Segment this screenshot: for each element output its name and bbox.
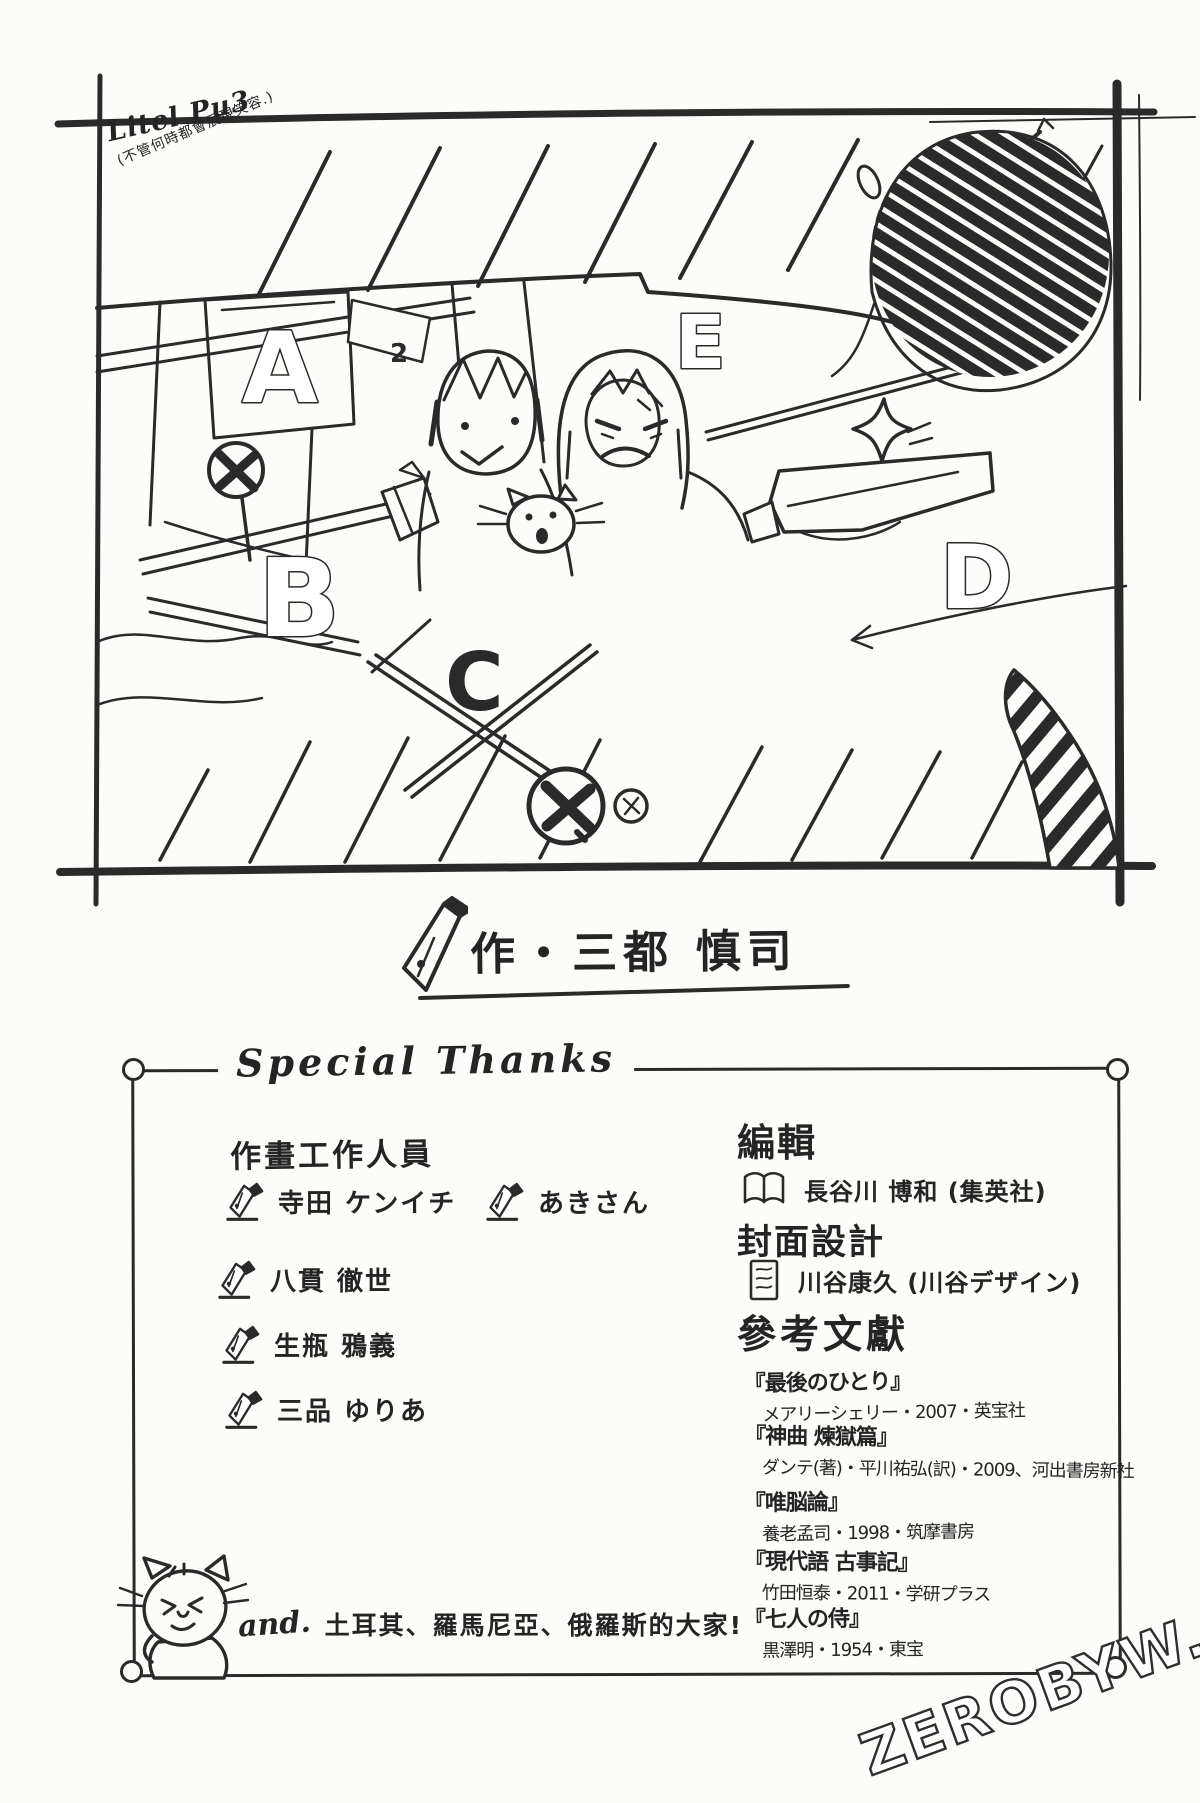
pen-nib-icon bbox=[222, 1323, 260, 1369]
box-corner-top-right bbox=[1106, 1058, 1129, 1081]
panel-label-b: B bbox=[258, 537, 340, 662]
star-sparkle bbox=[853, 399, 932, 461]
box-corner-top-left bbox=[122, 1058, 145, 1081]
panel-label-e: E bbox=[675, 300, 726, 386]
staff-section-header: 作畫工作人員 bbox=[230, 1129, 435, 1177]
reference-item: 『唯脳論』 養老孟司・1998・筑摩書房 bbox=[744, 1480, 1105, 1546]
scribbled-ball bbox=[832, 119, 1111, 391]
staff-name: あきさん bbox=[538, 1183, 650, 1226]
boy-character bbox=[419, 351, 572, 590]
reference-detail: ダンテ(著)・平川祐弘(訳)・2009、河出書房新社 bbox=[762, 1453, 1104, 1483]
cover-credit-row: 川谷康久 (川谷デザイン) bbox=[748, 1258, 1081, 1302]
reference-title: 『唯脳論』 bbox=[744, 1480, 1104, 1517]
site-watermark: ZEROBYW.COM bbox=[852, 1598, 1200, 1803]
reference-title: 『神曲 煉獄篇』 bbox=[744, 1418, 1104, 1454]
number-label: 2 bbox=[390, 339, 408, 369]
staff-row: あきさん bbox=[486, 1180, 650, 1226]
editor-credit-row: 長谷川 博和 (集英社) bbox=[742, 1170, 1047, 1208]
open-book-icon bbox=[742, 1170, 786, 1208]
book-cover-icon bbox=[748, 1258, 780, 1302]
screw-icon bbox=[529, 769, 647, 843]
pen-nib-icon bbox=[218, 1258, 256, 1304]
author-credit: 作・三都 慎司 bbox=[470, 914, 798, 982]
staff-row: 寺田 ケンイチ bbox=[226, 1180, 456, 1226]
extra-thanks-text: 土耳其、羅馬尼亞、俄羅斯的大家! bbox=[325, 1606, 743, 1642]
panel-label-d: D bbox=[940, 526, 1013, 629]
references-section-header: 參考文獻 bbox=[737, 1304, 909, 1360]
staff-name: 生瓶 鴉義 bbox=[274, 1326, 397, 1369]
extra-thanks-prefix: and. bbox=[237, 1605, 312, 1645]
panel-label-c: C bbox=[445, 636, 504, 729]
reference-item: 『神曲 煉獄篇』 ダンテ(著)・平川祐弘(訳)・2009、河出書房新社 bbox=[744, 1418, 1105, 1483]
special-thanks-title: Special Thanks bbox=[218, 1033, 635, 1088]
staff-row: 生瓶 鴉義 bbox=[222, 1323, 397, 1369]
cover-designer-name: 川谷康久 (川谷デザイン) bbox=[798, 1263, 1081, 1298]
editor-name: 長谷川 博和 (集英社) bbox=[804, 1172, 1047, 1207]
reference-item: 『最後のひとり』 メアリーシェリー・2007・英宝社 bbox=[743, 1360, 1104, 1427]
panel-label-a: A bbox=[242, 312, 318, 426]
staff-row: 三品 ゆりあ bbox=[225, 1388, 428, 1434]
reference-title: 『最後のひとり』 bbox=[743, 1360, 1104, 1398]
staff-row: 八貫 徹世 bbox=[218, 1258, 393, 1304]
staff-name: 寺田 ケンイチ bbox=[278, 1183, 456, 1226]
reference-detail: 養老孟司・1998・筑摩書房 bbox=[762, 1515, 1104, 1546]
pen-nib-icon bbox=[225, 1388, 263, 1434]
extra-thanks-line: and. 土耳其、羅馬尼亞、俄羅斯的大家! bbox=[238, 1606, 743, 1642]
editor-section-header: 編輯 bbox=[737, 1112, 817, 1167]
pen-nib-icon bbox=[486, 1180, 524, 1226]
striped-tail bbox=[1005, 670, 1119, 868]
pen-nib-icon bbox=[226, 1180, 264, 1226]
staff-name: 八貫 徹世 bbox=[270, 1261, 393, 1304]
scanned-manga-credits-page: A B C D E 2 Litel Pu3 (不管何時都會展現笑容.) 作・三都… bbox=[0, 0, 1200, 1803]
staff-name: 三品 ゆりあ bbox=[277, 1391, 428, 1434]
pen-nib-icon bbox=[388, 896, 468, 1008]
reference-title: 『現代語 古事記』 bbox=[744, 1543, 1104, 1578]
